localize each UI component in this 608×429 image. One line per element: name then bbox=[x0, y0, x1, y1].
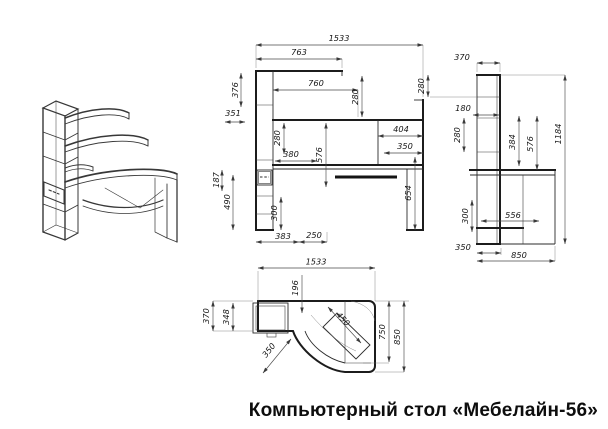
front-dimensions: 1533 763 376 351 760 280 280 404 350 380… bbox=[211, 33, 423, 242]
dim-top-right-inner-depth: 750 bbox=[377, 324, 387, 340]
dim-front-inner-height: 280 bbox=[272, 130, 282, 146]
front-view-drawing: 1533 763 376 351 760 280 280 404 350 380… bbox=[211, 12, 446, 257]
dim-side-lower-height: 300 bbox=[460, 208, 470, 224]
top-structure bbox=[253, 301, 375, 372]
dim-side-inner-width: 180 bbox=[455, 103, 471, 113]
dim-top-tray-offset: 196 bbox=[290, 280, 300, 296]
dim-top-right-depth: 850 bbox=[392, 329, 402, 345]
drawing-title: Компьютерный стол «Мебелайн-56» bbox=[249, 400, 598, 422]
dim-front-total-width: 1533 bbox=[329, 33, 350, 43]
dim-front-left-gap: 351 bbox=[225, 108, 241, 118]
side-view-drawing: 370 280 180 280 384 576 1184 300 556 350… bbox=[415, 14, 600, 266]
isometric-structure bbox=[43, 101, 177, 242]
dim-top-left-inner-depth: 348 bbox=[221, 309, 231, 325]
dim-front-niche-width: 404 bbox=[393, 124, 409, 134]
dim-side-upper-height: 280 bbox=[416, 78, 426, 94]
top-dimensions: 1533 370 348 196 450 350 750 850 bbox=[201, 257, 409, 374]
dim-front-right-top-height: 280 bbox=[350, 89, 360, 105]
dim-front-top-height: 376 bbox=[230, 82, 240, 98]
dim-front-desk-height: 576 bbox=[314, 147, 324, 163]
dim-front-lower-height: 300 bbox=[269, 205, 279, 221]
dim-front-bottom-left-width: 383 bbox=[275, 231, 291, 241]
side-dimensions: 370 280 180 280 384 576 1184 300 556 350… bbox=[416, 52, 565, 261]
dim-top-left-depth: 370 bbox=[201, 308, 211, 324]
dim-front-shelf-low-width: 380 bbox=[283, 149, 299, 159]
dim-top-tray-diag: 350 bbox=[260, 341, 278, 359]
dim-front-shelf-top-width: 763 bbox=[291, 47, 307, 57]
dim-side-inner-height: 280 bbox=[452, 127, 462, 143]
isometric-view-drawing bbox=[5, 20, 210, 260]
dim-side-foot-depth: 350 bbox=[455, 242, 471, 252]
dim-side-total-height: 1184 bbox=[553, 124, 563, 145]
dim-front-drawer-height: 187 bbox=[211, 171, 221, 187]
dim-side-tray-depth: 556 bbox=[505, 210, 521, 220]
dim-side-top-depth: 370 bbox=[454, 52, 470, 62]
dim-side-mid-height: 384 bbox=[507, 134, 517, 150]
dim-front-bottom-mid-width: 250 bbox=[306, 230, 322, 240]
technical-drawing-page: 1533 763 376 351 760 280 280 404 350 380… bbox=[0, 0, 608, 429]
dim-side-total-depth: 850 bbox=[511, 250, 527, 260]
dim-front-left-lower-height: 490 bbox=[222, 194, 232, 210]
dim-front-right-lower-height: 654 bbox=[403, 185, 413, 201]
dim-front-right-width: 350 bbox=[397, 141, 413, 151]
dim-top-total-width: 1533 bbox=[306, 257, 327, 267]
side-structure bbox=[430, 75, 555, 244]
top-view-drawing: 1533 370 348 196 450 350 750 850 bbox=[193, 255, 428, 410]
dim-side-desk-height: 576 bbox=[525, 136, 535, 152]
dim-front-shelf-mid-width: 760 bbox=[308, 78, 324, 88]
